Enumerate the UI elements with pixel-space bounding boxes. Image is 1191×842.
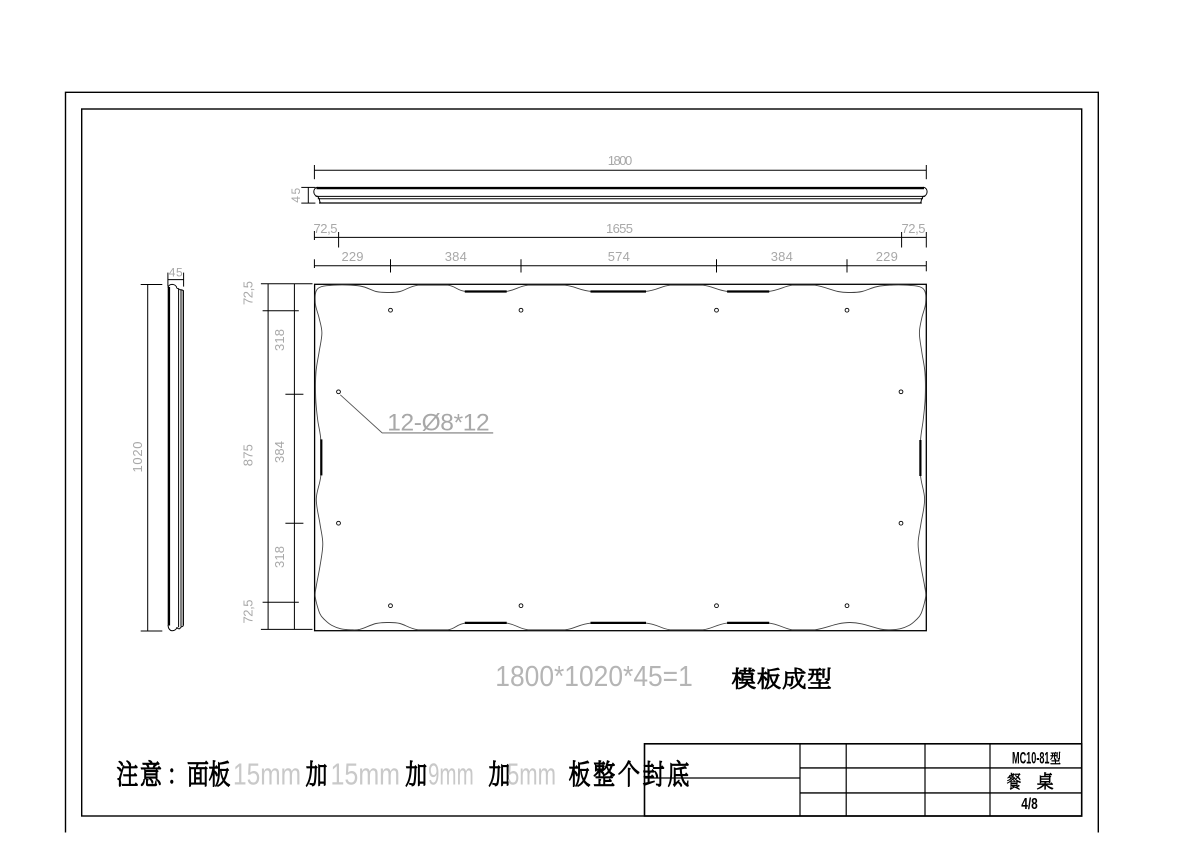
svg-text:384: 384 — [272, 441, 287, 463]
svg-text:9mm: 9mm — [428, 757, 474, 792]
svg-text:384: 384 — [771, 249, 793, 264]
svg-text:1020: 1020 — [130, 442, 145, 473]
svg-text:574: 574 — [608, 249, 630, 264]
svg-text:MC10-81: MC10-81 — [1012, 749, 1050, 767]
svg-text:45: 45 — [289, 187, 303, 202]
svg-text:875: 875 — [240, 444, 255, 466]
svg-text:4/8: 4/8 — [1021, 796, 1038, 813]
svg-text:1800: 1800 — [608, 153, 633, 168]
svg-text:72,5: 72,5 — [902, 221, 926, 236]
svg-text:229: 229 — [876, 249, 898, 264]
svg-text:15mm: 15mm — [233, 757, 301, 792]
svg-text:229: 229 — [342, 249, 364, 264]
svg-text:15mm: 15mm — [331, 757, 401, 792]
svg-text:318: 318 — [272, 546, 287, 568]
svg-text:72,5: 72,5 — [240, 600, 255, 624]
svg-text:72,5: 72,5 — [240, 281, 255, 305]
svg-text:1655: 1655 — [606, 221, 633, 236]
svg-text:12-Ø8*12: 12-Ø8*12 — [387, 410, 490, 437]
svg-text:45: 45 — [169, 265, 183, 279]
svg-text:5mm: 5mm — [507, 757, 556, 792]
svg-text:384: 384 — [445, 249, 467, 264]
svg-text:318: 318 — [272, 329, 287, 351]
svg-text:72,5: 72,5 — [314, 221, 338, 236]
svg-text:1800*1020*45=1: 1800*1020*45=1 — [495, 661, 693, 693]
